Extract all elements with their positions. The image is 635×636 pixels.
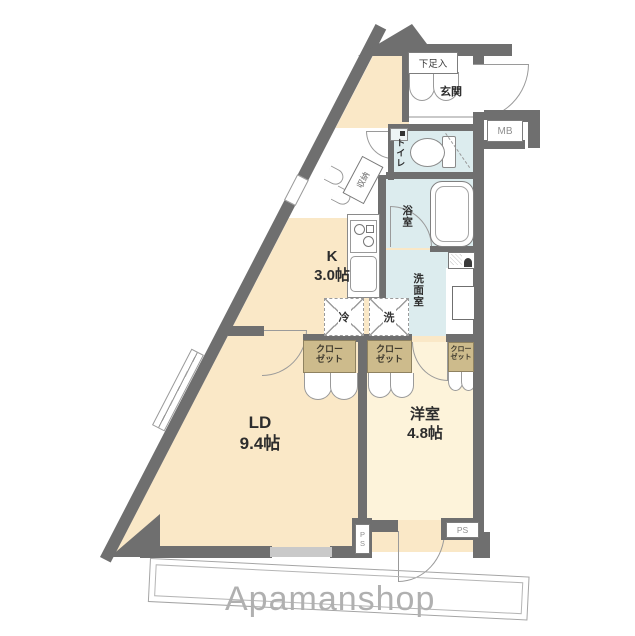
entrance-label: 玄関 <box>428 86 474 100</box>
refrigerator-label: 冷 <box>338 309 351 325</box>
watermark-text: Apamanshop <box>225 580 435 619</box>
shoe-cabinet-label: 下足入 <box>419 56 448 70</box>
bathtub-icon <box>430 181 474 247</box>
ps-right-box: PS <box>446 522 479 538</box>
closet-1-label-line2: ゼット <box>304 354 355 364</box>
kitchen-name: K <box>300 248 364 267</box>
washroom-door-knob <box>474 300 479 304</box>
washer-box: 洗 <box>369 298 409 336</box>
living-window-bottom <box>270 547 332 557</box>
kitchen-size: 3.0帖 <box>300 267 364 286</box>
washbasin-hatch <box>450 254 462 265</box>
toilet-bowl-icon <box>410 138 445 167</box>
closet-1-label-line1: クロー <box>304 344 355 354</box>
closet1-door-arc-right <box>330 373 358 400</box>
shoe-cabinet-box: 下足入 <box>408 52 458 74</box>
living-label: LD 9.4帖 <box>215 412 305 455</box>
western-name: 洋室 <box>385 406 465 425</box>
washer-label: 洗 <box>383 309 396 325</box>
kitchen-label: K 3.0帖 <box>300 248 364 286</box>
washroom-label: 洗面室 <box>411 256 424 324</box>
wall-corridor-right <box>446 334 480 342</box>
stove-grill <box>366 225 374 233</box>
closet-3-label-line2: ゼット <box>449 354 473 362</box>
meter-box-label: MB <box>498 126 513 137</box>
closet-3-label-line1: クロー <box>449 346 473 354</box>
wall-kitchen-living-stub <box>228 326 264 336</box>
wall-right-main <box>473 112 484 546</box>
stove-burner-2 <box>363 236 374 247</box>
closet2-door-arc-right <box>390 373 414 398</box>
ps-left-label: PS <box>358 530 367 548</box>
closet1-door-arc-left <box>304 373 332 400</box>
refrigerator-box: 冷 <box>324 298 364 336</box>
main-floor <box>0 0 635 636</box>
closet-2: クロー ゼット <box>367 340 412 373</box>
storage-label: 収納 <box>354 170 373 191</box>
closet-2-label-line1: クロー <box>368 344 411 354</box>
ps-left-box: PS <box>355 524 370 554</box>
living-size: 9.4帖 <box>215 433 305 454</box>
bathtub-inner <box>435 186 469 242</box>
bath-label: 浴室 <box>400 192 413 240</box>
floorplan: 下足入 MB 収納 冷 洗 クロー ゼット クロー ゼット クロー ゼット PS… <box>0 0 635 636</box>
closet-1: クロー ゼット <box>303 340 356 373</box>
stove-burner-1 <box>354 224 365 235</box>
ps-right-label: PS <box>457 525 468 535</box>
toilet-label: トイレ <box>394 133 405 173</box>
closet-3: クロー ゼット <box>448 342 474 372</box>
washroom-door-icon <box>452 286 475 320</box>
washbasin-icon <box>448 252 475 269</box>
washbasin-bowl-dot <box>464 258 472 267</box>
wall-toilet-bath <box>386 172 473 179</box>
wall-mb-top <box>484 110 525 120</box>
meter-box: MB <box>487 120 523 142</box>
western-room-label: 洋室 4.8帖 <box>385 406 465 444</box>
closet-2-label-line2: ゼット <box>368 354 411 364</box>
living-name: LD <box>215 412 305 433</box>
wall-living-bottom-left <box>140 546 272 558</box>
wall-mb-step-v <box>528 120 540 148</box>
wall-right-upper <box>473 44 484 64</box>
closet2-door-arc-left <box>368 373 392 398</box>
entrance-step-line <box>409 116 473 118</box>
western-size: 4.8帖 <box>385 425 465 444</box>
